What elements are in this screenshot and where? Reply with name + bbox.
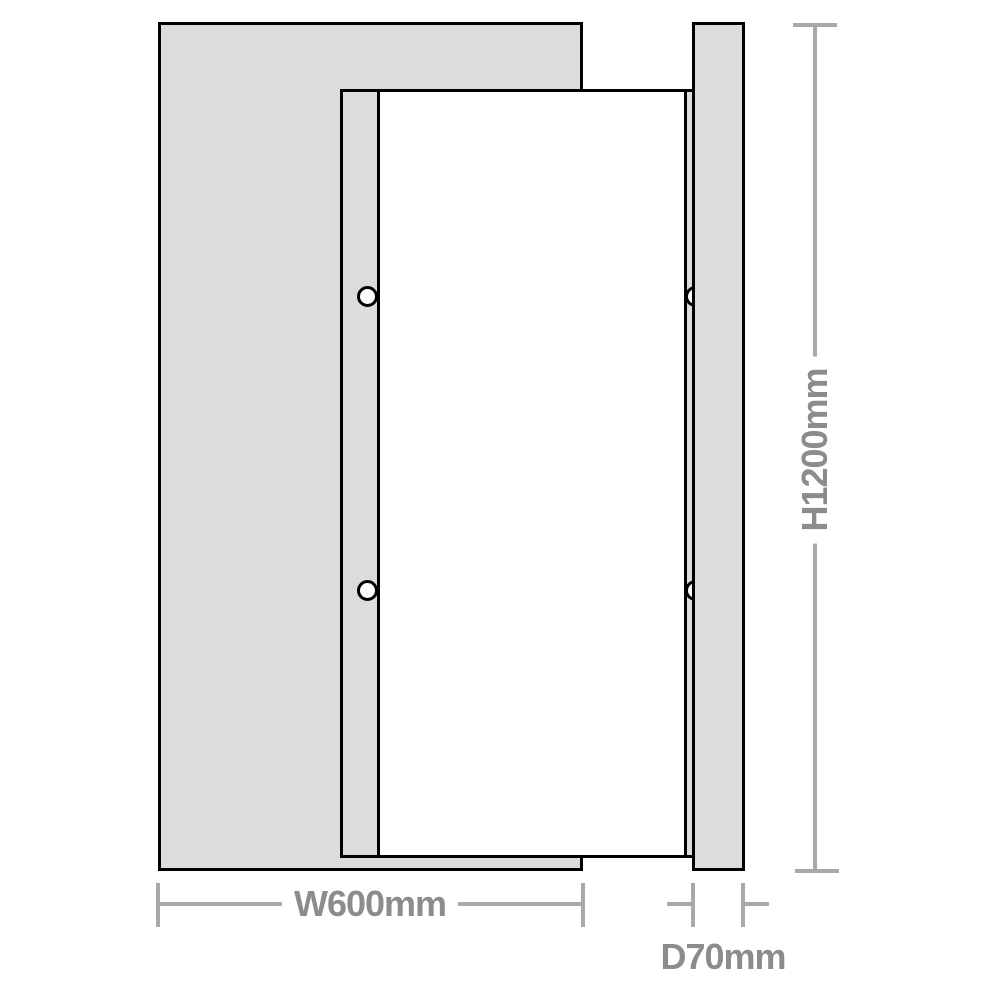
width-dimension-tick-left — [156, 883, 160, 927]
mounting-hole-bottom-left — [357, 580, 378, 601]
front-view-outer-frame — [158, 22, 583, 871]
height-dimension-tick-top — [793, 23, 837, 27]
left-mounting-strip — [343, 92, 380, 855]
front-view-inner-panel — [340, 89, 724, 858]
depth-dimension-stub-right — [745, 902, 769, 906]
dimension-diagram: W600mm H1200mm D70mm — [0, 0, 1000, 1000]
width-dimension-tick-right — [581, 883, 585, 927]
side-view-profile — [692, 22, 745, 871]
mounting-hole-top-left — [357, 286, 378, 307]
height-dimension-tick-bottom — [795, 869, 839, 873]
depth-dimension-stub-left — [667, 902, 691, 906]
height-dimension-label: H1200mm — [793, 356, 837, 543]
depth-dimension-tick-left — [691, 883, 695, 927]
width-dimension-label: W600mm — [282, 882, 458, 926]
depth-dimension-label: D70mm — [660, 939, 785, 975]
